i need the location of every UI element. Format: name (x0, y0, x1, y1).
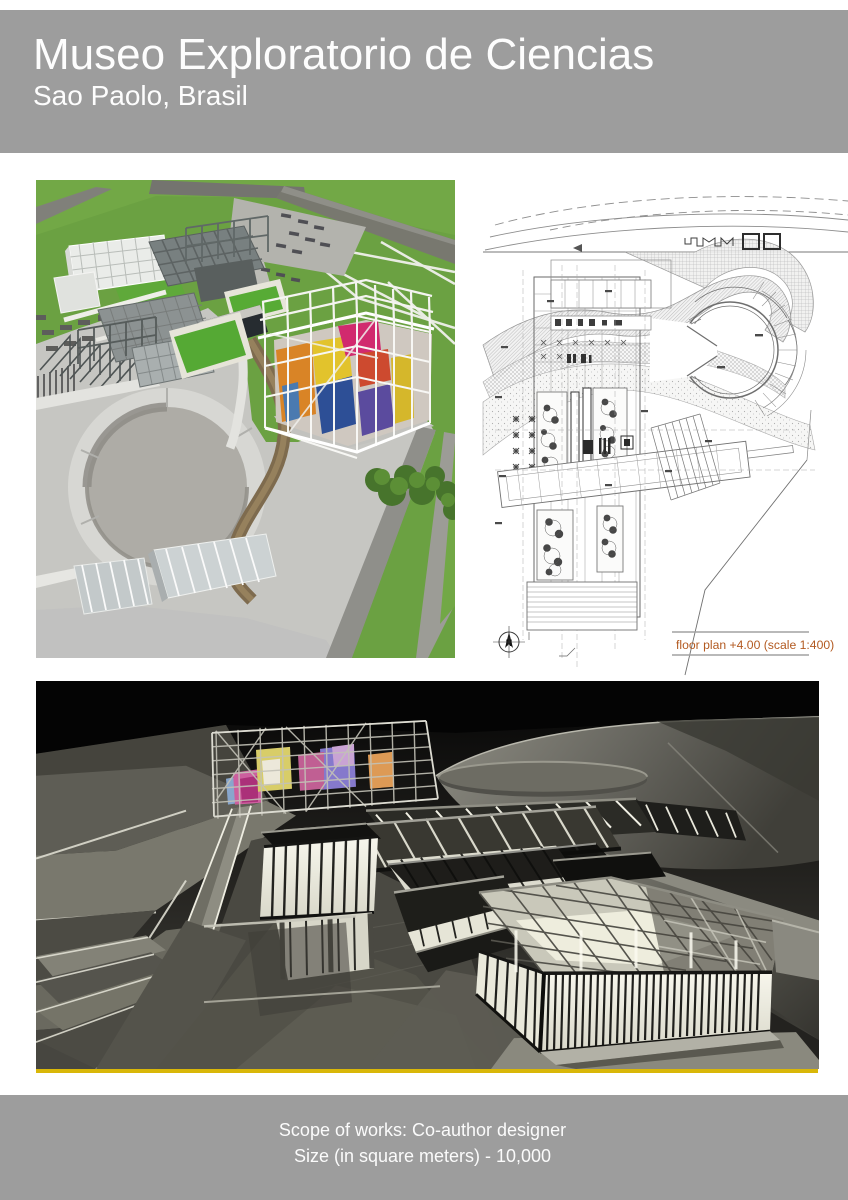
svg-text:floor plan +4.00 (scale 1:400: floor plan +4.00 (scale 1:400) (676, 638, 834, 652)
